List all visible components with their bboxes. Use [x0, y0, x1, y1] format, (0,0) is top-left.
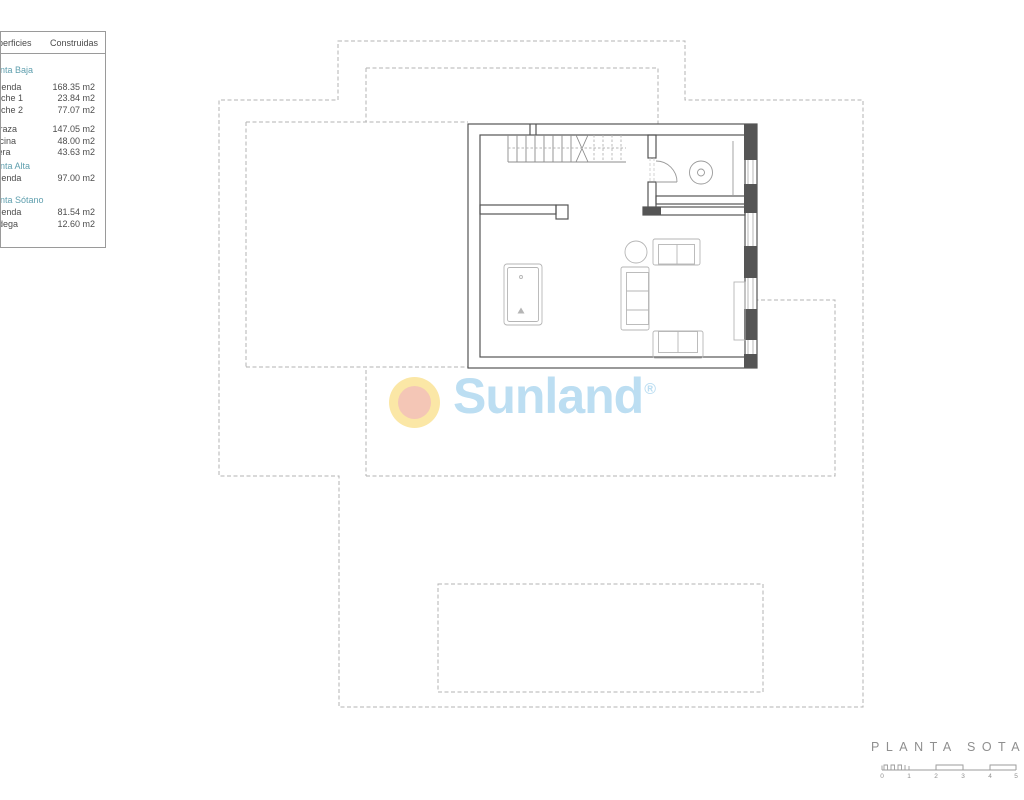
- wall-end-cap: [556, 205, 568, 219]
- stair-break-line: [576, 135, 588, 162]
- furniture: [504, 239, 745, 358]
- scale-tick-1: 1: [907, 773, 911, 780]
- brand-name-text: Sunland: [453, 368, 643, 424]
- brand-watermark: Sunland®: [389, 371, 655, 434]
- floor-plan-walls: [468, 124, 757, 368]
- scale-tick-4: 4: [988, 773, 992, 780]
- scale-tick-2: 2: [934, 773, 938, 780]
- sun-icon-core: [398, 386, 431, 419]
- sun-icon: [389, 377, 440, 428]
- wall-pier: [643, 207, 661, 215]
- brand-name: Sunland®: [453, 371, 655, 434]
- right-wall-piers: [744, 124, 757, 368]
- outer-wall: [468, 124, 757, 368]
- door-opening: [650, 158, 654, 182]
- hall-divider-wall: [480, 205, 556, 214]
- pool-outline-dashed: [438, 584, 763, 692]
- sideboard: [734, 282, 745, 340]
- sofa-side: [621, 267, 649, 330]
- door-swing-arc: [656, 161, 677, 182]
- bathroom: [650, 141, 733, 196]
- inner-wall-face: [480, 135, 745, 357]
- basin-drain: [698, 169, 705, 176]
- top-wall-joint: [530, 124, 536, 135]
- scale-tick-0: 0: [880, 773, 884, 780]
- bathroom-wall-upper: [648, 135, 656, 158]
- basin: [690, 161, 713, 184]
- round-table: [625, 241, 647, 263]
- floor-plan-sheet: Superficies Construidas Planta BajaVivie…: [0, 0, 1024, 800]
- drain-triangle: [518, 308, 525, 314]
- scale-bar: 0 1 2 3 4 5: [880, 765, 1018, 780]
- staircase: [508, 135, 626, 162]
- plan-title: PLANTA SOTANO: [871, 740, 1024, 754]
- scale-tick-3: 3: [961, 773, 965, 780]
- registered-trademark-symbol: ®: [644, 381, 655, 398]
- sofa-top: [653, 239, 700, 265]
- scale-subdivision-comb: [884, 765, 905, 770]
- sofa-bottom: [653, 331, 703, 358]
- scale-tick-5: 5: [1014, 773, 1018, 780]
- bathroom-bottom-wall: [656, 196, 745, 204]
- bathtub: [504, 264, 542, 325]
